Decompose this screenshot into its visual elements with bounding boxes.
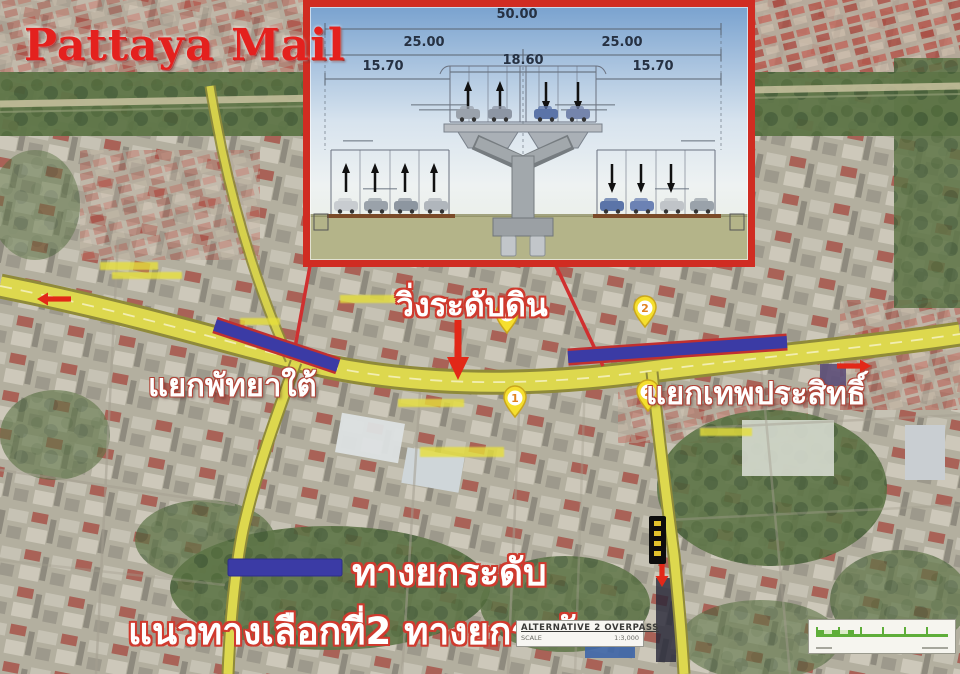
news-map-graphic: 1 2 1 2 <box>0 0 960 674</box>
scale-bar-line <box>816 634 948 637</box>
dim-total-width: 50.00 <box>496 7 537 22</box>
road-name-sign <box>649 516 666 564</box>
dim-right-frontage: 15.70 <box>632 59 673 74</box>
dim-right-half: 25.00 <box>601 35 642 50</box>
cross-section-inset: 50.00 25.00 25.00 15.70 18.60 15.70 <box>303 0 755 268</box>
dim-left-half: 25.00 <box>403 35 444 50</box>
map-scale-bar <box>808 619 956 654</box>
label-ground-level: วิ่งระดับดิน <box>396 280 548 331</box>
pin-1-south-label: 1 <box>511 392 519 405</box>
masthead-logo: Pattaya Mail <box>24 20 346 71</box>
legend-elevated-label: ทางยกระดับ <box>352 543 547 602</box>
scale-value: 1:3,000 <box>614 634 639 642</box>
pin-2-north-label: 2 <box>641 302 649 315</box>
drawing-title: ALTERNATIVE 2 OVERPASS <box>521 623 639 633</box>
legend-elevated-bar <box>228 559 342 576</box>
scale-bar-text-left <box>816 647 832 649</box>
label-thepprasit-junction: แยกเทพประสิทธิ์ <box>646 368 866 418</box>
label-south-pattaya-junction: แยกพัทยาใต้ <box>148 360 317 410</box>
scale-bar-text-right <box>922 647 948 649</box>
drawing-title-block: ALTERNATIVE 2 OVERPASS SCALE 1:3,000 <box>516 620 644 647</box>
drawing-scale-row: SCALE 1:3,000 <box>521 634 639 642</box>
scale-label: SCALE <box>521 634 542 642</box>
dim-left-frontage: 15.70 <box>362 59 403 74</box>
